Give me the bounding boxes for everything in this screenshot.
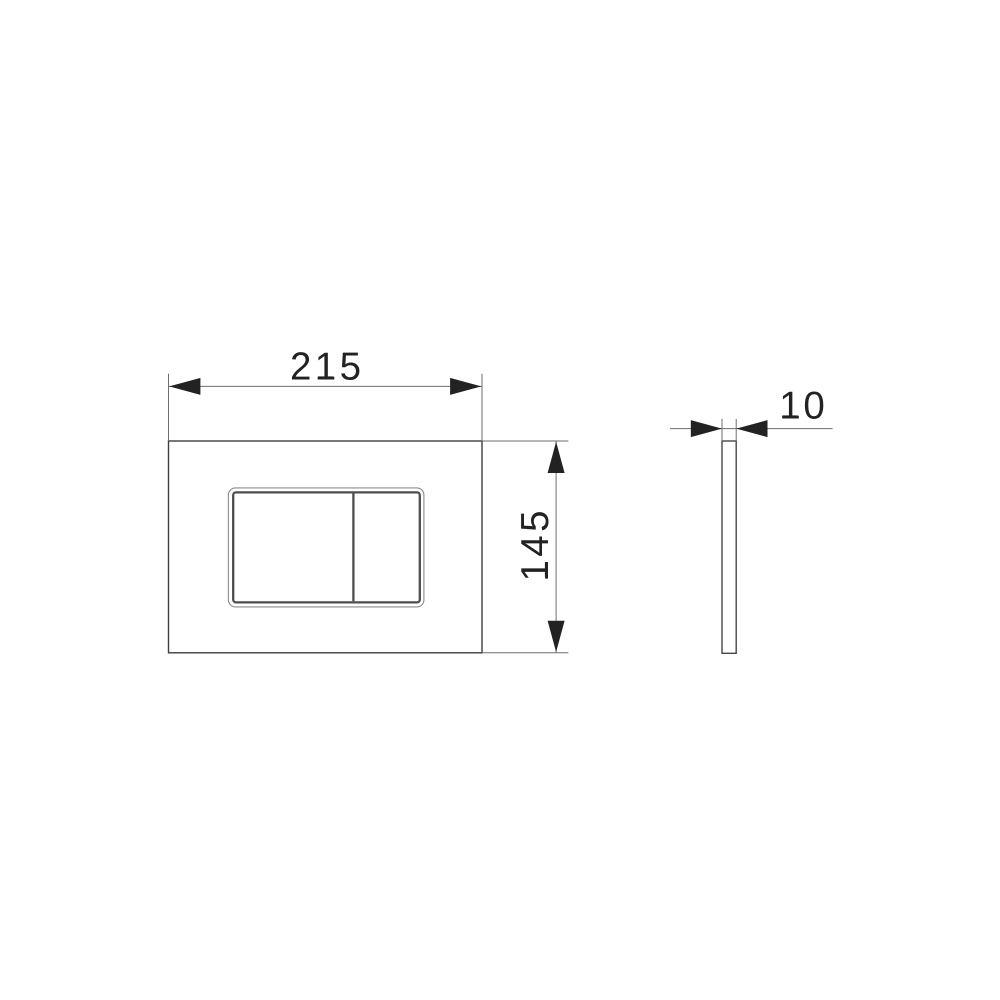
svg-text:145: 145: [514, 511, 557, 582]
svg-text:10: 10: [779, 385, 825, 428]
svg-text:215: 215: [290, 346, 361, 389]
